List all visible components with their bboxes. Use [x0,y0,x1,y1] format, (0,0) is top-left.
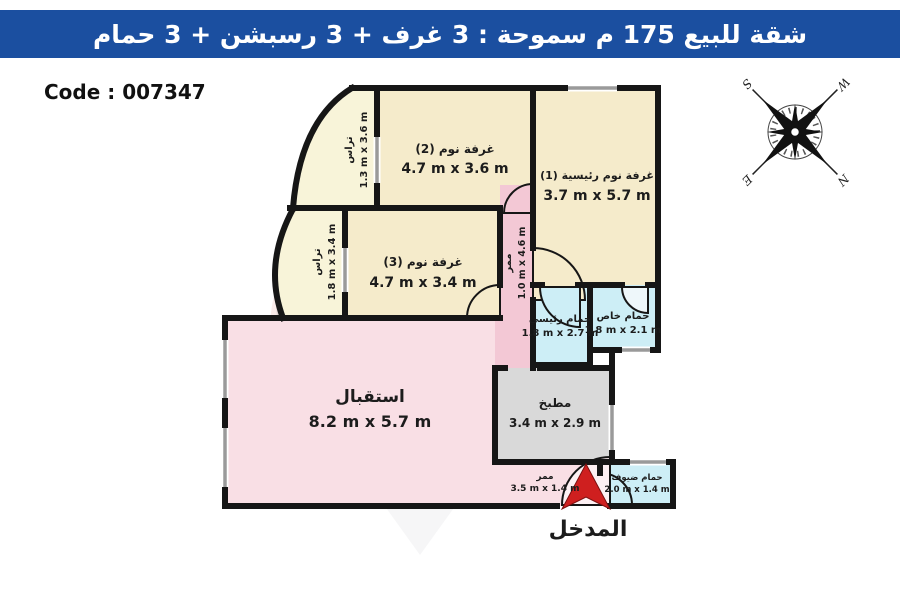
room-kitchen [495,368,612,462]
label-reception-name: استقبال [335,387,405,407]
label-hallway2-name: ممر [535,472,553,482]
label-bedroom3-name: غرفة نوم (3) [383,255,462,270]
label-kitchen-name: مطبخ [539,396,572,410]
floor-plan-page: شقة للبيع 175 م سموحة : 3 غرف + 3 رسبشن … [0,0,900,600]
label-terrace2-name: تراس [312,248,323,275]
label-hallway1-name: ممر [503,253,514,273]
label-privbath-name: حمام خاص [597,311,650,322]
entrance-label: المدخل [549,517,628,542]
label-bedroom2-dims: 4.7 m x 3.6 m [401,161,508,177]
label-privbath-dims: 1.8 m x 2.1 m [585,325,662,336]
label-hallway1-dims: 1.0 m x 4.6 m [517,226,528,299]
label-master-name: غرفة نوم رئيسية (1) [540,169,654,182]
compass-s-label: S [739,76,755,92]
label-bedroom2-name: غرفة نوم (2) [415,142,494,157]
label-bedroom3-dims: 4.7 m x 3.4 m [369,275,476,291]
label-hallway2-dims: 3.5 m x 1.4 m [511,484,580,494]
label-terrace2-dims: 1.8 m x 3.4 m [327,224,338,301]
label-master-dims: 3.7 m x 5.7 m [543,188,650,204]
label-terrace1-dims: 1.3 m x 3.6 m [359,112,370,189]
label-guestbath-dims: 2.0 m x 1.4 m [604,485,669,495]
label-mainbath-name: حمام رئيسي [529,314,591,325]
label-terrace1-name: تراس [344,136,355,163]
compass-rose: N S E W [691,27,900,237]
label-kitchen-dims: 3.4 m x 2.9 m [509,416,601,430]
label-guestbath-name: حمام ضيوف [611,473,662,483]
label-reception-dims: 8.2 m x 5.7 m [309,412,432,431]
floor-plan-svg: RE/MAX AVALON [0,0,900,600]
